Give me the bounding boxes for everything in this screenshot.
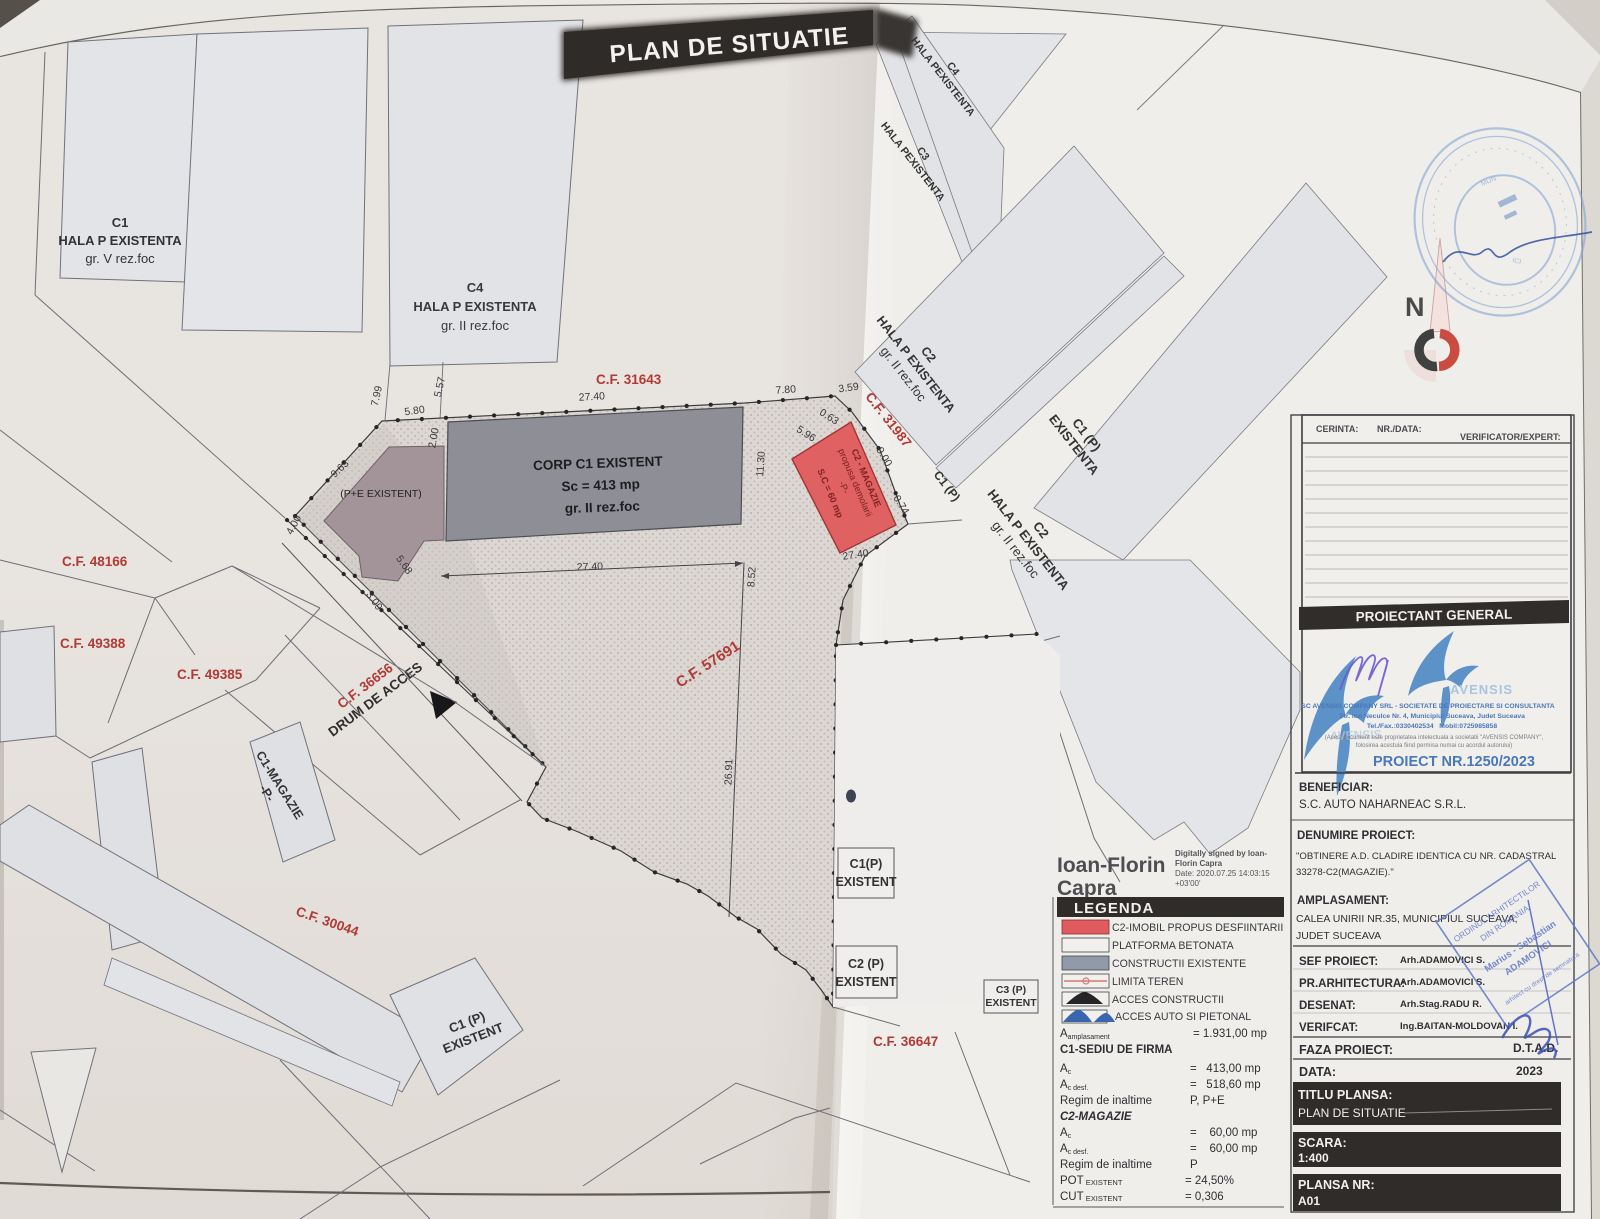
svg-text:PROIECT NR.1250/2023: PROIECT NR.1250/2023 — [1373, 754, 1535, 770]
svg-text:PROIECTANT GENERAL: PROIECTANT GENERAL — [1356, 607, 1513, 625]
svg-text:Regim de inaltime: Regim de inaltime — [1060, 1095, 1152, 1107]
svg-text:ACCES AUTO SI PIETONAL: ACCES AUTO SI PIETONAL — [1115, 1011, 1251, 1023]
svg-text:C4: C4 — [467, 280, 484, 295]
svg-text:C1-SEDIU DE FIRMA: C1-SEDIU DE FIRMA — [1060, 1044, 1172, 1056]
svg-text:C.F. 49388: C.F. 49388 — [60, 636, 126, 651]
svg-text:C.F. 48166: C.F. 48166 — [62, 554, 128, 569]
svg-text:1:400: 1:400 — [1298, 1151, 1329, 1165]
svg-text:DESENAT:: DESENAT: — [1299, 1000, 1356, 1012]
svg-text:7.80: 7.80 — [775, 383, 796, 396]
svg-text:N: N — [1405, 292, 1425, 322]
svg-text:A01: A01 — [1298, 1194, 1320, 1208]
svg-text:C.F. 31643: C.F. 31643 — [596, 372, 662, 387]
svg-text:2023: 2023 — [1516, 1064, 1543, 1078]
svg-text:folosirea acestuia fiind permi: folosirea acestuia fiind permisa numai c… — [1356, 743, 1512, 749]
svg-text:P: P — [1190, 1159, 1198, 1171]
svg-text:PLANSA NR:: PLANSA NR: — [1298, 1178, 1375, 1192]
svg-text:C1(P): C1(P) — [850, 857, 883, 871]
svg-text:8.52: 8.52 — [745, 566, 758, 587]
svg-text:EXISTENT: EXISTENT — [985, 997, 1037, 1009]
svg-text:SEF PROIECT:: SEF PROIECT: — [1299, 956, 1378, 968]
svg-text:DATA:: DATA: — [1299, 1065, 1336, 1079]
svg-text:LIMITA TEREN: LIMITA TEREN — [1112, 976, 1183, 988]
svg-text:C2-IMOBIL PROPUS DESFIINTARII: C2-IMOBIL PROPUS DESFIINTARII — [1112, 922, 1283, 934]
svg-text:SCARA:: SCARA: — [1298, 1136, 1347, 1150]
svg-text:EXISTENT: EXISTENT — [835, 975, 896, 989]
svg-text:PLAN DE SITUATIE: PLAN DE SITUATIE — [1298, 1106, 1406, 1120]
svg-text:Ing.BAITAN-MOLDOVAN I.: Ing.BAITAN-MOLDOVAN I. — [1400, 1021, 1518, 1032]
svg-text:JUDET SUCEAVA: JUDET SUCEAVA — [1296, 930, 1381, 942]
svg-text:BENEFICIAR:: BENEFICIAR: — [1299, 782, 1373, 794]
svg-text:Arh.ADAMOVICI S.: Arh.ADAMOVICI S. — [1400, 977, 1485, 988]
svg-text:Tel./Fax.:0330402534 Mobil:0: Tel./Fax.:0330402534 Mobil:0725985858 — [1367, 723, 1497, 730]
svg-text:Capra: Capra — [1057, 877, 1117, 900]
svg-text:C3 (P): C3 (P) — [996, 984, 1026, 996]
svg-text:C.F. 49385: C.F. 49385 — [177, 667, 243, 682]
svg-text:DENUMIRE PROIECT:: DENUMIRE PROIECT: — [1297, 830, 1415, 842]
svg-text:= 518,60 mp: = 518,60 mp — [1190, 1079, 1261, 1091]
svg-text:= 24,50%: = 24,50% — [1185, 1175, 1234, 1187]
svg-text:PLATFORMA BETONATA: PLATFORMA BETONATA — [1112, 940, 1235, 952]
svg-text:PR.ARHITECTURA:: PR.ARHITECTURA: — [1299, 978, 1405, 990]
svg-text:= 60,00 mp: = 60,00 mp — [1190, 1143, 1257, 1155]
svg-text:= 0,306: = 0,306 — [1185, 1191, 1224, 1203]
svg-text:= 413,00 mp: = 413,00 mp — [1190, 1063, 1261, 1075]
svg-text:26.91: 26.91 — [723, 759, 736, 786]
svg-text:gr. II rez.foc: gr. II rez.foc — [441, 318, 509, 333]
svg-text:Ioan-Florin: Ioan-Florin — [1057, 854, 1166, 877]
svg-text:AMPLASAMENT:: AMPLASAMENT: — [1297, 895, 1389, 907]
svg-text:gr. V rez.foc: gr. V rez.foc — [85, 251, 155, 266]
svg-text:HALA P EXISTENTA: HALA P EXISTENTA — [413, 299, 537, 314]
svg-text:TITLU PLANSA:: TITLU PLANSA: — [1298, 1088, 1392, 1102]
svg-text:LEGENDA: LEGENDA — [1074, 900, 1154, 917]
svg-text:S.C. AUTO NAHARNEAC S.R.L.: S.C. AUTO NAHARNEAC S.R.L. — [1299, 799, 1466, 811]
svg-text:(Acest document este proprieta: (Acest document este proprietatea intele… — [1325, 735, 1544, 741]
svg-text:FAZA PROIECT:: FAZA PROIECT: — [1299, 1043, 1393, 1057]
svg-text:C2 (P): C2 (P) — [848, 957, 884, 971]
svg-text:Digitally signed by Ioan-: Digitally signed by Ioan- — [1175, 849, 1267, 858]
svg-text:C.F. 36647: C.F. 36647 — [873, 1034, 938, 1049]
svg-text:(P+E EXISTENT): (P+E EXISTENT) — [340, 488, 421, 500]
svg-text:Arh.Stag.RADU R.: Arh.Stag.RADU R. — [1400, 999, 1482, 1010]
svg-text:EXISTENT: EXISTENT — [835, 875, 896, 889]
svg-text:Florin Capra: Florin Capra — [1175, 859, 1223, 868]
svg-text:CONSTRUCTII EXISTENTE: CONSTRUCTII EXISTENTE — [1112, 958, 1246, 970]
svg-text:VERIFICATOR/EXPERT:: VERIFICATOR/EXPERT: — [1460, 432, 1561, 442]
svg-text:CERINTA:: CERINTA: — [1316, 424, 1358, 434]
svg-text:Str. Ion Neculce Nr. 4, Munici: Str. Ion Neculce Nr. 4, Municipiul Sucea… — [1339, 713, 1525, 720]
svg-text:11.30: 11.30 — [754, 451, 768, 477]
svg-text:C1: C1 — [112, 215, 129, 230]
svg-text:Arh.ADAMOVICI S.: Arh.ADAMOVICI S. — [1400, 955, 1485, 966]
svg-text:27.40: 27.40 — [577, 561, 604, 574]
svg-text:NR./DATA:: NR./DATA: — [1377, 424, 1422, 434]
svg-text:P, P+E: P, P+E — [1190, 1095, 1225, 1107]
svg-text:Date: 2020.07.25 14:03:15: Date: 2020.07.25 14:03:15 — [1175, 869, 1270, 878]
svg-text:HALA P EXISTENTA: HALA P EXISTENTA — [58, 233, 182, 248]
svg-text:C2-MAGAZIE: C2-MAGAZIE — [1060, 1111, 1132, 1123]
svg-text:= 60,00 mp: = 60,00 mp — [1190, 1127, 1257, 1139]
svg-text:"OBTINERE A.D. CLADIRE IDENTIC: "OBTINERE A.D. CLADIRE IDENTICA CU NR. C… — [1296, 851, 1557, 862]
svg-text:Regim de inaltime: Regim de inaltime — [1060, 1159, 1152, 1171]
svg-text:gr. II rez.foc: gr. II rez.foc — [565, 498, 641, 516]
svg-text:VERIFCAT:: VERIFCAT: — [1299, 1022, 1358, 1034]
svg-text:Sc = 413 mp: Sc = 413 mp — [561, 476, 640, 494]
svg-text:SC AVENSIS COMPANY SRL - SOCIE: SC AVENSIS COMPANY SRL - SOCIETATE DE PR… — [1301, 703, 1554, 710]
svg-text:27.40: 27.40 — [578, 390, 605, 403]
svg-text:ACCES CONSTRUCTII: ACCES CONSTRUCTII — [1112, 994, 1224, 1006]
svg-text:AVENSIS: AVENSIS — [1450, 682, 1513, 697]
svg-text:33278-C2(MAGAZIE).": 33278-C2(MAGAZIE)." — [1296, 867, 1394, 878]
svg-text:+03'00': +03'00' — [1175, 879, 1201, 888]
svg-text:= 1.931,00 mp: = 1.931,00 mp — [1193, 1028, 1267, 1040]
